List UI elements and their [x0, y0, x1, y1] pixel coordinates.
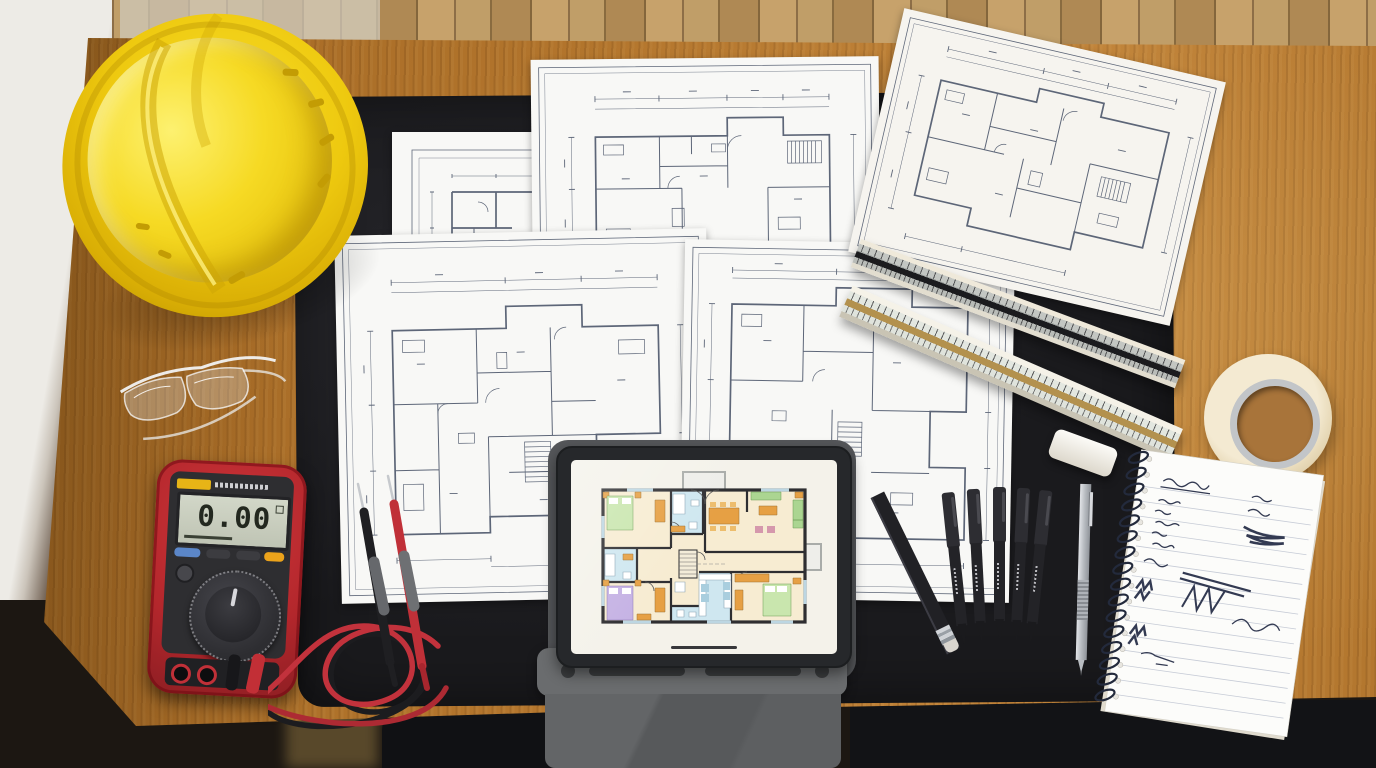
spiral-notebook — [1067, 433, 1343, 755]
multimeter-knob — [204, 585, 263, 644]
multimeter-jack-1 — [170, 663, 191, 684]
multimeter-brand-badge — [177, 478, 211, 490]
black-lead-plug — [225, 654, 241, 691]
multimeter-jack-panel — [164, 657, 279, 691]
tablet-case-flap — [545, 694, 841, 768]
multimeter-model-text — [215, 482, 269, 490]
tablet — [556, 446, 852, 668]
fineliner-pen-3 — [994, 487, 1005, 651]
multimeter-round-button — [175, 563, 195, 583]
tablet-screen — [571, 460, 837, 654]
multimeter-jack-2 — [196, 665, 217, 686]
multimeter-button-blue — [174, 547, 200, 557]
workspace-photo: 0.00 — [0, 0, 1376, 768]
multimeter-knob-pointer — [230, 588, 237, 606]
multimeter-bargraph — [184, 535, 232, 541]
multimeter-button-2 — [236, 550, 260, 560]
multimeter-button-1 — [206, 549, 230, 559]
multimeter-test-leads — [268, 468, 492, 732]
multimeter-reading: 0.00 — [197, 498, 273, 536]
screen-glare — [571, 460, 837, 654]
